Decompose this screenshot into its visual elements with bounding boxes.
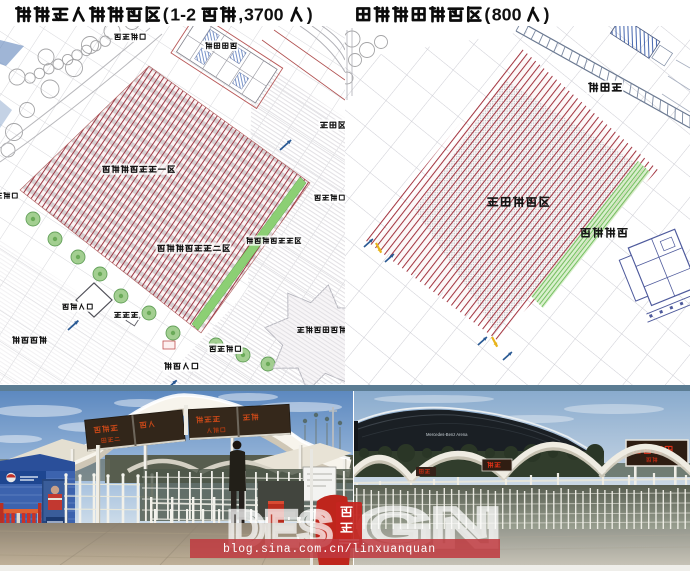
svg-text:800: 800 (492, 5, 522, 25)
svg-text:(: ( (163, 5, 169, 25)
svg-text:3700: 3700 (244, 5, 284, 25)
svg-text:(: ( (484, 5, 490, 25)
svg-text:): ) (544, 5, 550, 25)
svg-text:): ) (307, 5, 313, 25)
svg-text:Mercedes-Benz Arena: Mercedes-Benz Arena (426, 432, 468, 437)
svg-text:,: , (238, 5, 243, 25)
svg-text:blog.sina.com.cn/linxuanquan: blog.sina.com.cn/linxuanquan (223, 543, 436, 556)
svg-text:1-2: 1-2 (170, 5, 196, 25)
